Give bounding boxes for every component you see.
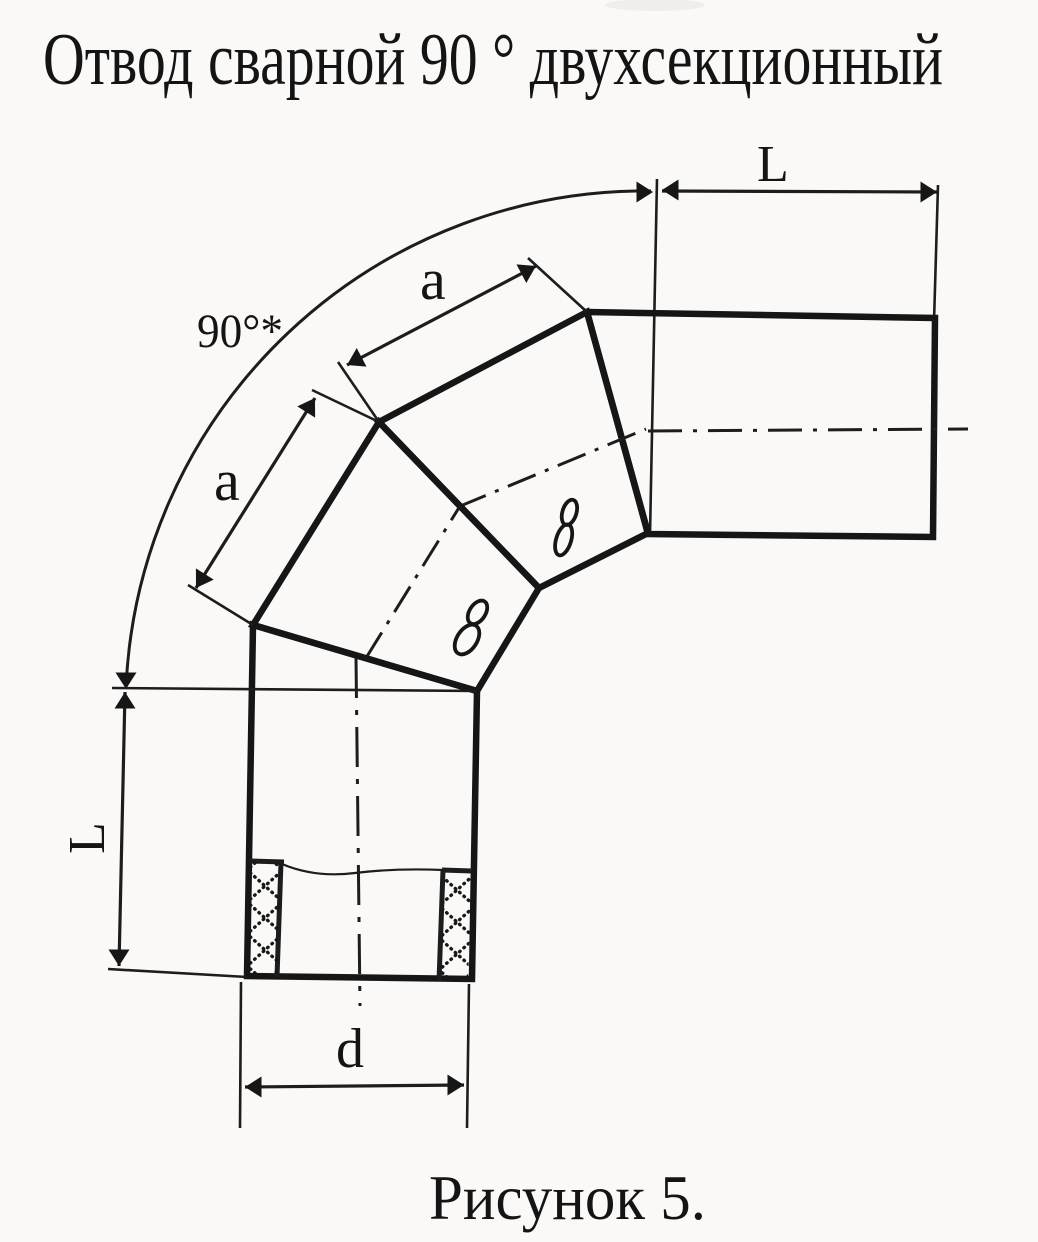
svg-text:d: d — [336, 1018, 364, 1080]
svg-text:Рисунок 5.: Рисунок 5. — [429, 1163, 706, 1233]
svg-text:L: L — [757, 136, 789, 193]
svg-text:Отвод сварной 90 ° двухсекцион: Отвод сварной 90 ° двухсекционный — [43, 19, 943, 101]
svg-text:a: a — [420, 247, 446, 312]
svg-text:a: a — [214, 448, 240, 513]
svg-text:90°*: 90°* — [197, 305, 283, 358]
svg-text:L: L — [59, 822, 116, 854]
